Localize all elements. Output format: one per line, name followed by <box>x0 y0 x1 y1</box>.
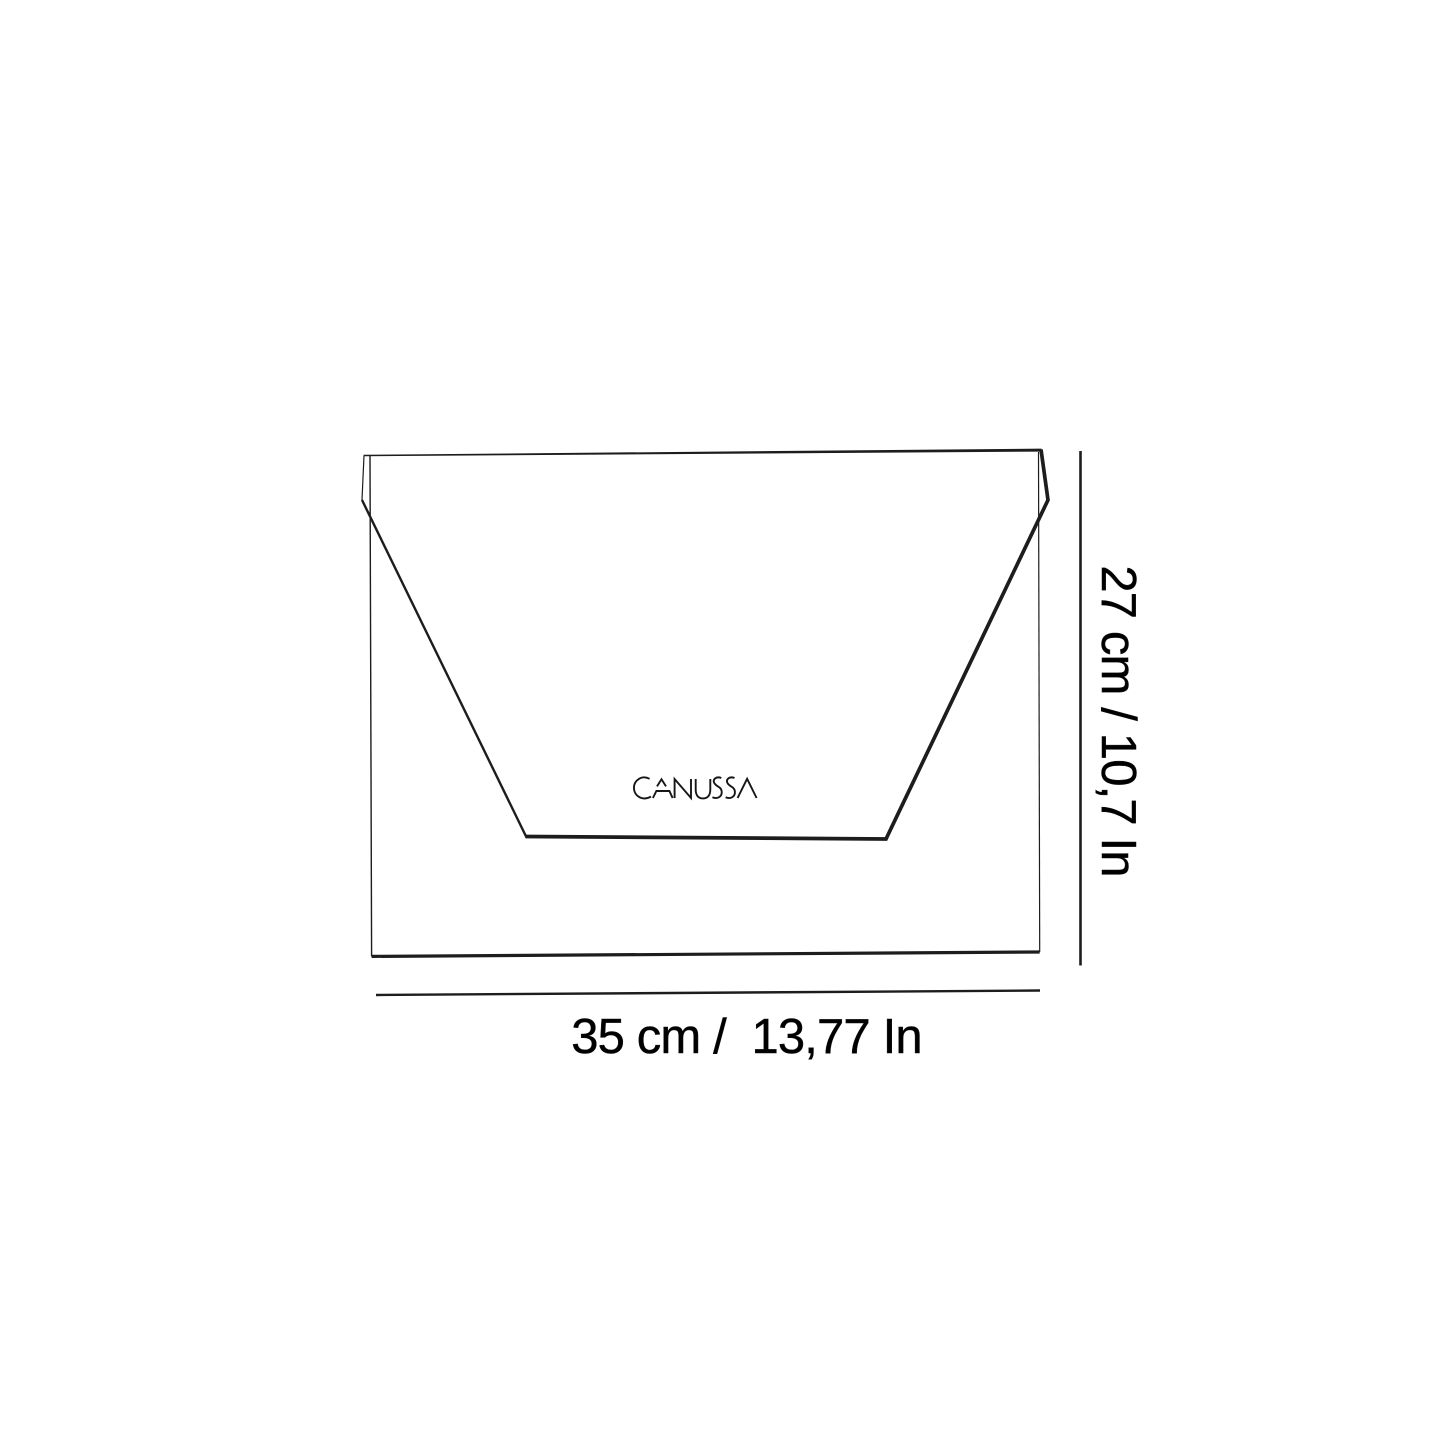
svg-text:35 cm / 13,77 In: 35 cm / 13,77 In <box>571 1010 922 1064</box>
svg-text:27 cm / 10,7 In: 27 cm / 10,7 In <box>1091 565 1145 876</box>
